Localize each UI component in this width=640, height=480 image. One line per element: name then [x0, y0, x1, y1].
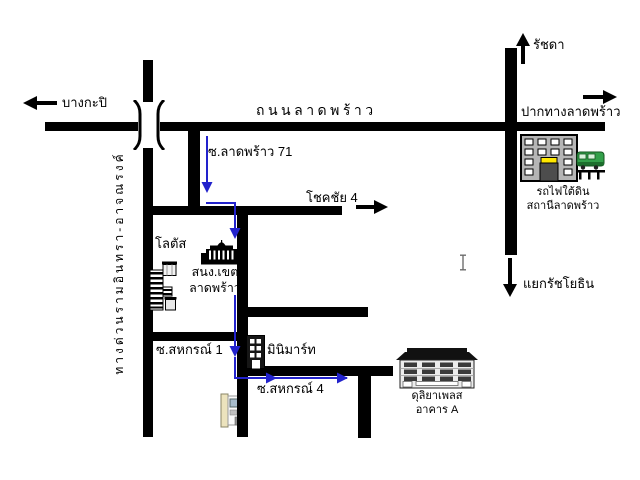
- label-district-office-line2: ลาดพร้าว: [186, 280, 244, 296]
- label-district-office-line1: สนง.เขต: [186, 264, 244, 280]
- district-office-building-icon: [200, 240, 243, 265]
- mrt-train-icon: [576, 152, 605, 180]
- label-lotus: โลตัส: [155, 236, 186, 252]
- mrt-station-building-icon: [519, 132, 605, 184]
- label-soi-sahakorn-1: ซ.สหกรณ์ 1: [156, 342, 223, 358]
- label-mrt-line2: สถานีลาดพร้าว: [524, 199, 602, 213]
- label-ratchada: รัชดา: [533, 37, 565, 53]
- label-pak-thang-ladprao: ปากทางลาดพร้าว: [521, 104, 621, 120]
- route-arrows-icon: [0, 0, 640, 480]
- label-district-office: สนง.เขต ลาดพร้าว: [186, 264, 244, 297]
- lotus-store-icon: [148, 261, 179, 312]
- label-duliya-place: ดุลิยาเพลส อาคาร A: [400, 389, 474, 418]
- label-yaek-ratchayothin: แยกรัชโยธิน: [523, 276, 594, 292]
- label-mrt-line1: รถไฟใต้ดิน: [524, 185, 602, 199]
- label-mrt-station: รถไฟใต้ดิน สถานีลาดพร้าว: [524, 185, 602, 214]
- label-bangkapi: บางกะปิ: [62, 95, 107, 111]
- label-duliya-line2: อาคาร A: [400, 403, 474, 417]
- map-canvas: บางกะปิ ถนนลาดพร้าว รัชดา ปากทางลาดพร้าว…: [0, 0, 640, 480]
- label-soi-ladprao-71: ซ.ลาดพร้าว 71: [208, 144, 292, 160]
- label-thanon-ladprao: ถนนลาดพร้าว: [256, 102, 377, 120]
- label-minimart: มินิมาร์ท: [267, 342, 316, 358]
- minimart-icon: [245, 334, 266, 370]
- label-soi-sahakorn-4: ซ.สหกรณ์ 4: [257, 381, 324, 397]
- label-duliya-line1: ดุลิยาเพลส: [400, 389, 474, 403]
- label-chokchai-4: โชคชัย 4: [306, 190, 358, 206]
- label-expressway: ทางด่วนรามอินทรา-อาจณรงค์: [110, 149, 126, 377]
- text-ibeam-cursor-icon: [458, 254, 468, 271]
- duliya-place-building-icon: [394, 347, 480, 392]
